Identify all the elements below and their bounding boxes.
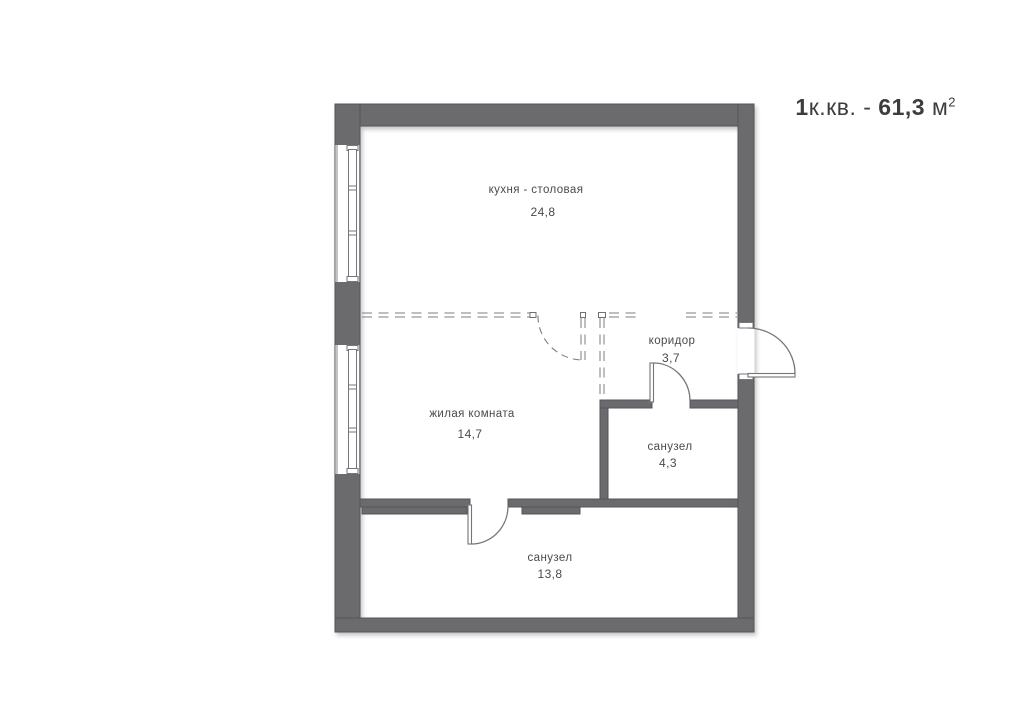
entrance-opening: [738, 323, 755, 380]
window-2-mullion-b: [349, 428, 357, 432]
wall-top: [335, 104, 754, 126]
wall-bottom-room-thick-b: [522, 507, 580, 514]
dashed-partition-corridor-vertical: [600, 318, 604, 398]
room-label-bathroom: санузел: [648, 441, 693, 453]
room-label-corridor: коридор: [649, 335, 696, 347]
bathroom-door-leaf: [650, 363, 654, 402]
bottom-room-door: [468, 505, 508, 544]
floor-plan: кухня - столовая 24,8 жилая комната 14,7…: [0, 0, 1024, 723]
wall-bottom-room-a: [360, 499, 470, 507]
dashed-partition-corridor-top-a: [609, 313, 640, 317]
wall-bottom-room-thick-a: [362, 507, 467, 514]
room-area-corridor: 3,7: [662, 351, 680, 365]
partition-jamb-tick: [530, 313, 536, 318]
dashed-door-hinge: [581, 313, 586, 318]
room-area-living-room: 14,7: [458, 427, 483, 441]
room-label-kitchen-dining: кухня - столовая: [489, 184, 584, 196]
window-1: [336, 145, 361, 282]
bathroom-door-swing-arc: [654, 363, 691, 401]
window-2-cap-bottom: [347, 469, 358, 474]
virtual-partitions: [362, 313, 737, 399]
room-label-bathroom-2: санузел: [528, 552, 573, 564]
wall-corridor-bathroom-a: [600, 400, 652, 408]
window-1-frame: [349, 150, 357, 278]
wall-bottom: [335, 618, 754, 632]
interior-walls: [360, 400, 738, 514]
room-area-kitchen-dining: 24,8: [531, 205, 556, 219]
dashed-door-kitchen: [538, 313, 586, 361]
dashed-partition-corridor-top-b: [686, 313, 737, 317]
room-area-bathroom-2: 13,8: [538, 567, 563, 581]
dashed-partition-kitchen: [362, 313, 530, 317]
bathroom-door: [650, 363, 690, 402]
partition-corner-tick: [599, 313, 606, 318]
bottom-room-door-swing-arc: [472, 506, 509, 545]
wall-bathroom-left: [600, 400, 608, 507]
entrance-gap: [738, 328, 755, 374]
window-1-mullion-a: [349, 186, 357, 190]
wall-corridor-bathroom-b: [690, 400, 738, 408]
entrance-sill-top: [739, 323, 753, 329]
window-1-cap-bottom: [347, 277, 358, 282]
room-area-bathroom: 4,3: [659, 456, 677, 470]
floor-plan-page: 1к.кв. - 61,3 м2: [0, 0, 1024, 723]
dashed-door-swing-arc: [538, 316, 583, 361]
window-2-mullion-a: [349, 385, 357, 389]
window-2-frame: [349, 350, 357, 470]
bottom-room-door-leaf: [468, 505, 472, 544]
room-label-living-room: жилая комната: [429, 408, 515, 420]
window-2: [336, 345, 361, 474]
wall-bottom-room-b: [508, 499, 738, 507]
entrance-door-swing-arc: [748, 328, 795, 374]
entrance-door-leaf: [748, 374, 795, 378]
entrance-door: [748, 328, 795, 377]
window-1-mullion-b: [349, 231, 357, 235]
